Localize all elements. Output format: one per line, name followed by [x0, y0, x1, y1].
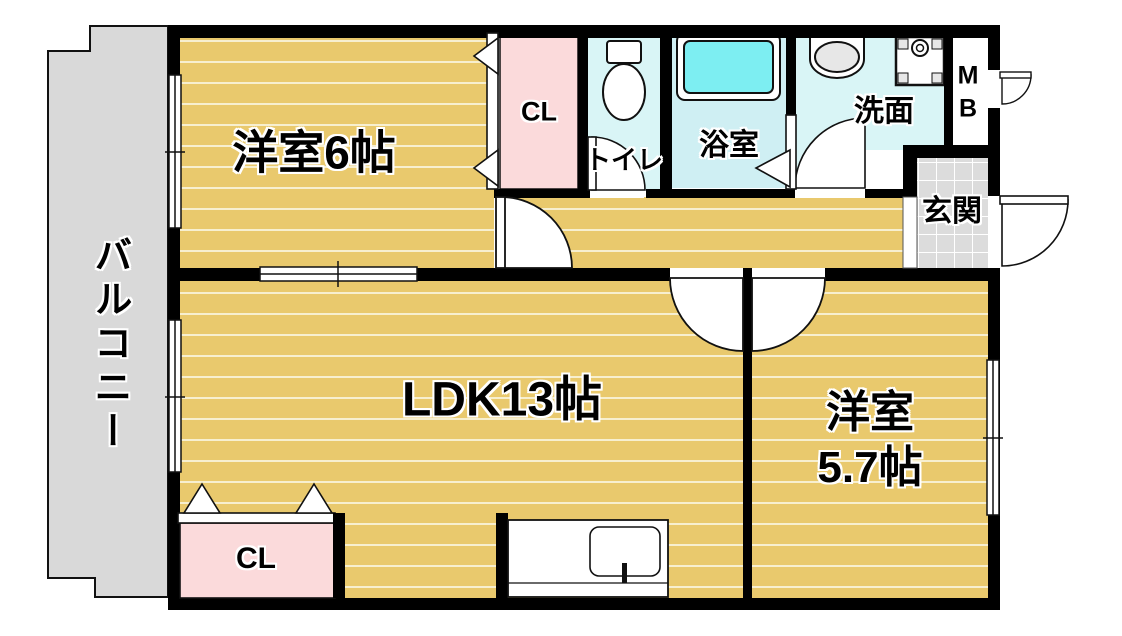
label-west57-line2: 5.7帖 — [817, 440, 922, 495]
label-washroom: 洗面 — [854, 95, 914, 130]
label-west6: 洋室6帖 — [232, 127, 396, 180]
label-entrance: 玄関 — [922, 195, 982, 230]
toilet-icon — [603, 41, 645, 120]
label-meter-box-b: B — [958, 92, 979, 125]
kitchen-counter — [508, 520, 668, 597]
washing-machine-icon — [896, 37, 944, 85]
sink-icon — [810, 37, 864, 78]
floor-plan: 洋室6帖 CL トイレ 浴室 洗面 M B 玄関 LDK13帖 洋室 5.7帖 … — [0, 0, 1122, 636]
label-ldk: LDK13帖 — [402, 372, 602, 427]
label-closet-top: CL — [521, 96, 557, 127]
entrance-step — [903, 197, 917, 268]
label-meter-box: M B — [958, 60, 979, 125]
floor-plan-drawing — [0, 0, 1122, 636]
label-west57: 洋室 5.7帖 — [817, 385, 922, 495]
label-bath: 浴室 — [699, 129, 759, 164]
label-west57-line1: 洋室 — [817, 385, 922, 440]
bathtub-icon — [677, 33, 780, 100]
label-balcony: バルコニー — [86, 235, 130, 455]
door-meter-box — [988, 70, 1031, 108]
label-meter-box-m: M — [958, 60, 979, 93]
label-toilet: トイレ — [585, 146, 663, 176]
door-entrance — [988, 196, 1068, 268]
label-closet-bottom: CL — [236, 542, 276, 577]
void — [865, 150, 905, 188]
